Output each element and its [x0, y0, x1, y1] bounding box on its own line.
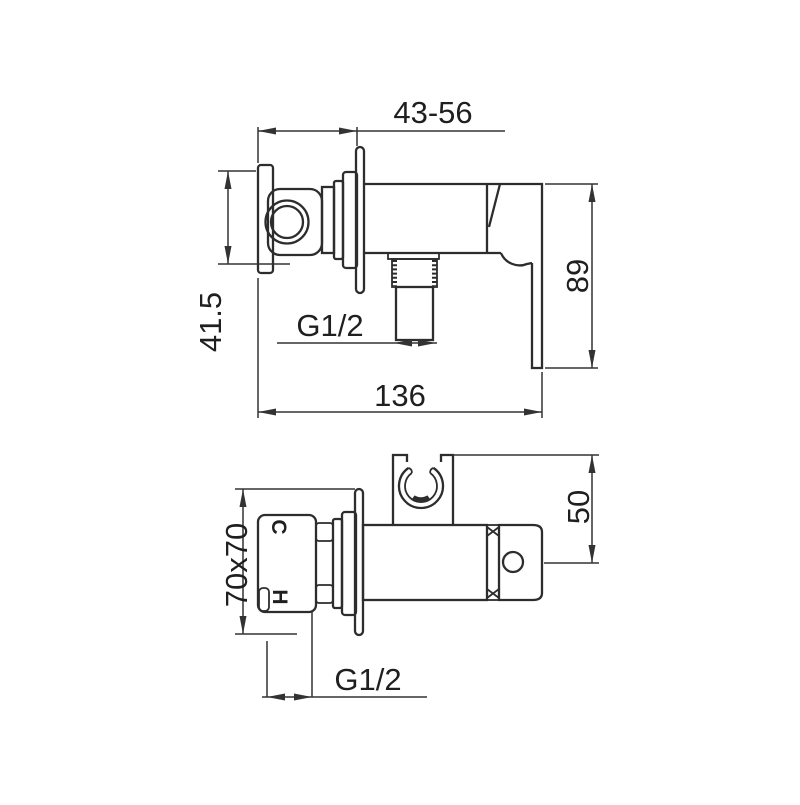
arrowhead [258, 128, 276, 135]
dim-holder-height-label: 50 [561, 490, 596, 524]
handle-block [499, 525, 542, 600]
arrowhead [225, 246, 232, 264]
box-slot [259, 588, 269, 611]
bracket-boss [268, 189, 322, 255]
handset-holder [393, 455, 453, 525]
upper-prong [316, 523, 333, 541]
dim-holder-height: 50 [453, 455, 599, 563]
arrowhead [240, 616, 247, 634]
inlet-thread-label: G1/2 [334, 662, 401, 697]
arrowhead [589, 350, 596, 368]
dim-offset-height: 41.5 [193, 171, 290, 352]
top-view-figure: C H [219, 455, 599, 701]
dim-total-length-label: 136 [374, 378, 426, 413]
wall-plate-assembly [322, 147, 364, 293]
neck [322, 187, 334, 253]
outlet-thread-label: G1/2 [296, 308, 363, 343]
handle-hook-curve [501, 253, 532, 265]
arrowhead [225, 171, 232, 189]
side-view-figure: 43-56 41.5 G1/2 136 [193, 95, 598, 418]
ring-outline [487, 525, 499, 600]
arrowhead [258, 409, 276, 416]
hot-port-label: H [268, 589, 291, 604]
dim-inlet-thread: G1/2 [262, 612, 427, 701]
arrowhead [294, 694, 312, 701]
dim-plate-size-label: 70x70 [219, 523, 254, 607]
knurled-ring [487, 525, 499, 600]
mounting-bracket [258, 165, 322, 273]
handle-taper-line [489, 184, 500, 227]
threaded-outlet [388, 253, 439, 340]
knurl-hatch [487, 527, 499, 598]
arrowhead [339, 128, 357, 135]
arrowhead [589, 455, 596, 473]
dim-offset-height-label: 41.5 [193, 292, 228, 352]
dim-handle-length-label: 89 [560, 259, 595, 293]
thread-zone [392, 259, 437, 287]
arrowhead [589, 184, 596, 202]
dim-width-range: 43-56 [258, 95, 505, 163]
inlet-pipe-inner-circle [271, 206, 303, 238]
clip-tip-curls [408, 468, 433, 473]
arrowhead [524, 409, 542, 416]
outlet-pipe [396, 287, 433, 340]
wall-plate-assembly-bottom [333, 489, 363, 635]
technical-drawing-page: 43-56 41.5 G1/2 136 [0, 0, 800, 800]
valve-body-and-handle [364, 184, 542, 368]
lower-prong [316, 585, 333, 603]
cold-port-label: C [267, 519, 290, 534]
arrowhead [589, 545, 596, 563]
screw-circle [503, 552, 523, 572]
flange [334, 181, 343, 259]
dim-handle-length: 89 [545, 184, 598, 368]
arrowhead [240, 489, 247, 507]
valve-body-top-view [363, 525, 487, 600]
hot-cold-box: C H [258, 515, 333, 612]
flange [333, 519, 342, 608]
handle-block-outline [499, 525, 542, 600]
body-handle-outline [364, 184, 542, 368]
faucet-dimension-drawing: 43-56 41.5 G1/2 136 [0, 0, 800, 800]
dim-width-range-label: 43-56 [393, 95, 472, 130]
arrowhead [267, 694, 285, 701]
dim-total-length: 136 [258, 278, 542, 418]
